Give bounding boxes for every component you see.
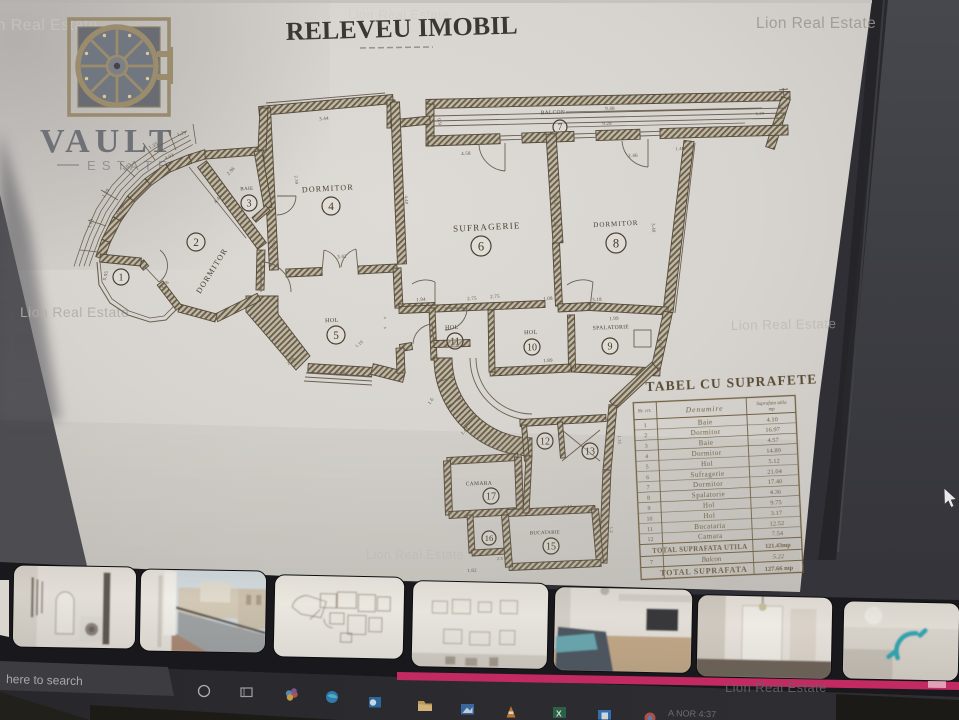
svg-text:10: 10: [527, 343, 537, 354]
svg-text:HOL: HOL: [325, 318, 339, 324]
svg-text:3.44: 3.44: [319, 117, 329, 123]
svg-text:HOL: HOL: [445, 325, 459, 331]
svg-text:3.49: 3.49: [650, 223, 656, 233]
svg-text:HOL: HOL: [524, 330, 538, 336]
svg-text:9: 9: [608, 342, 613, 353]
svg-text:1.08: 1.08: [543, 297, 553, 303]
svg-text:A NOR 4:37: A NOR 4:37: [668, 708, 716, 719]
svg-text:Lion Real Estate: Lion Real Estate: [725, 680, 827, 695]
svg-text:16.97: 16.97: [765, 426, 781, 434]
svg-text:1: 1: [644, 423, 647, 429]
svg-text:6: 6: [478, 240, 484, 254]
svg-text:2.75: 2.75: [467, 297, 477, 303]
svg-text:Lion Real Estate: Lion Real Estate: [731, 316, 837, 333]
svg-text:1.89: 1.89: [543, 359, 553, 365]
svg-text:2.46: 2.46: [628, 154, 638, 160]
svg-text:1.94: 1.94: [416, 298, 426, 304]
svg-text:8: 8: [613, 237, 619, 251]
svg-text:BAIE: BAIE: [240, 187, 254, 193]
svg-text:9.48: 9.48: [605, 107, 615, 112]
svg-text:3.42: 3.42: [337, 255, 347, 261]
svg-text:3: 3: [247, 199, 252, 210]
svg-text:4.58: 4.58: [461, 152, 471, 158]
svg-text:Lion Real Estate: Lion Real Estate: [20, 304, 129, 320]
svg-text:2: 2: [193, 237, 199, 249]
svg-text:1.60: 1.60: [657, 339, 663, 349]
svg-text:SPALATORIE: SPALATORIE: [593, 324, 630, 331]
svg-text:6.29: 6.29: [756, 111, 765, 116]
svg-text:Denumire: Denumire: [685, 404, 724, 415]
svg-text:4: 4: [328, 201, 334, 213]
svg-text:3.18: 3.18: [592, 298, 602, 304]
svg-text:7: 7: [558, 122, 563, 132]
svg-text:Baie: Baie: [698, 418, 713, 427]
svg-text:4.10: 4.10: [766, 416, 778, 424]
svg-text:Nr. crt.: Nr. crt.: [637, 409, 652, 415]
svg-text:Dormitor: Dormitor: [690, 428, 721, 437]
svg-text:X: X: [556, 709, 562, 719]
svg-text:mp: mp: [769, 407, 776, 412]
svg-text:BALCON: BALCON: [541, 110, 566, 117]
svg-text:1.99: 1.99: [609, 317, 619, 323]
svg-text:2.75: 2.75: [490, 295, 500, 301]
svg-text:4.40: 4.40: [404, 195, 409, 204]
svg-text:1: 1: [119, 273, 124, 284]
svg-text:1.46: 1.46: [675, 146, 684, 151]
svg-text:3.13: 3.13: [552, 195, 558, 205]
svg-text:11: 11: [450, 337, 460, 348]
svg-text:9.28: 9.28: [602, 122, 612, 127]
svg-text:5: 5: [333, 330, 339, 342]
svg-text:2.30: 2.30: [294, 175, 300, 185]
svg-text:Lion Real Estate: Lion Real Estate: [756, 15, 876, 32]
svg-text:here to search: here to search: [6, 672, 83, 688]
svg-text:2.98: 2.98: [336, 372, 346, 378]
svg-text:3.13: 3.13: [552, 217, 558, 227]
